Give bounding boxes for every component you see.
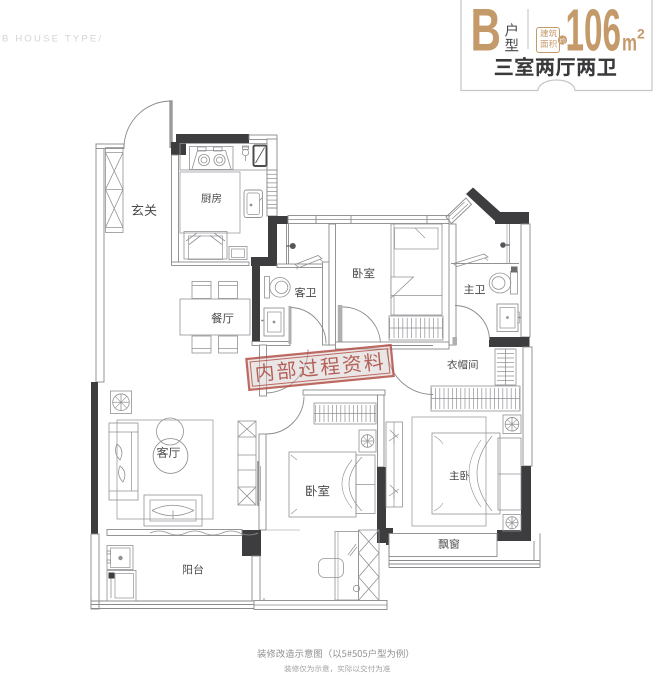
svg-text:B HOUSE TYPE/: B HOUSE TYPE/: [2, 34, 103, 45]
svg-text:106: 106: [566, 0, 622, 64]
svg-text:2: 2: [637, 26, 645, 42]
svg-text:m: m: [622, 30, 637, 56]
svg-text:B: B: [471, 0, 502, 64]
